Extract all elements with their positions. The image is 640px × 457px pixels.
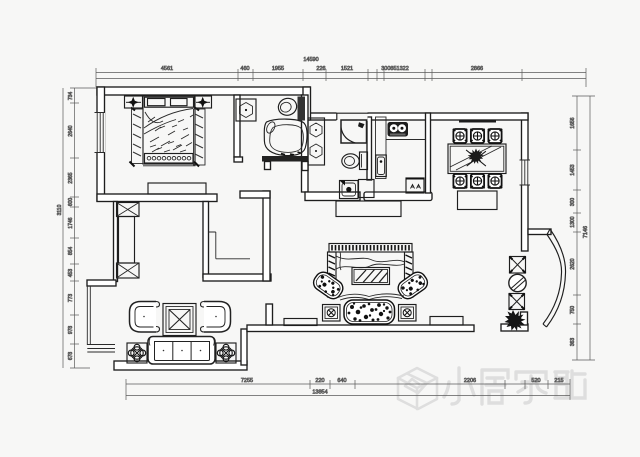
svg-text:734: 734 [68,92,74,101]
svg-text:1453: 1453 [570,164,576,175]
svg-text:520: 520 [531,378,540,384]
svg-text:226: 226 [316,66,325,72]
svg-text:13854: 13854 [312,390,327,396]
svg-text:1746: 1746 [68,217,74,228]
svg-text:1300: 1300 [570,216,576,227]
svg-text:2206: 2206 [464,378,476,384]
svg-text:2866: 2866 [471,66,483,72]
svg-text:2640: 2640 [68,125,74,136]
svg-text:600: 600 [68,198,74,207]
svg-text:300: 300 [570,198,576,207]
svg-text:678: 678 [68,352,74,361]
svg-text:2620: 2620 [570,258,576,269]
svg-text:773: 773 [68,294,74,303]
svg-text:978: 978 [68,326,74,335]
svg-text:640: 640 [337,378,346,384]
svg-text:7255: 7255 [241,378,253,384]
svg-text:453: 453 [68,269,74,278]
svg-text:1955: 1955 [272,66,284,72]
svg-text:4561: 4561 [161,66,173,72]
svg-text:460: 460 [240,66,249,72]
svg-text:854: 854 [68,247,74,256]
svg-text:363: 363 [570,338,576,347]
svg-text:1521: 1521 [341,66,353,72]
svg-text:3110: 3110 [57,204,63,215]
svg-text:1656: 1656 [570,117,576,128]
svg-text:750: 750 [570,306,576,315]
svg-text:2365: 2365 [68,172,74,183]
svg-text:220: 220 [315,378,324,384]
svg-text:14590: 14590 [303,57,318,63]
svg-text:7146: 7146 [583,226,589,238]
svg-text:215: 215 [554,378,563,384]
svg-text:300851322: 300851322 [381,66,409,72]
